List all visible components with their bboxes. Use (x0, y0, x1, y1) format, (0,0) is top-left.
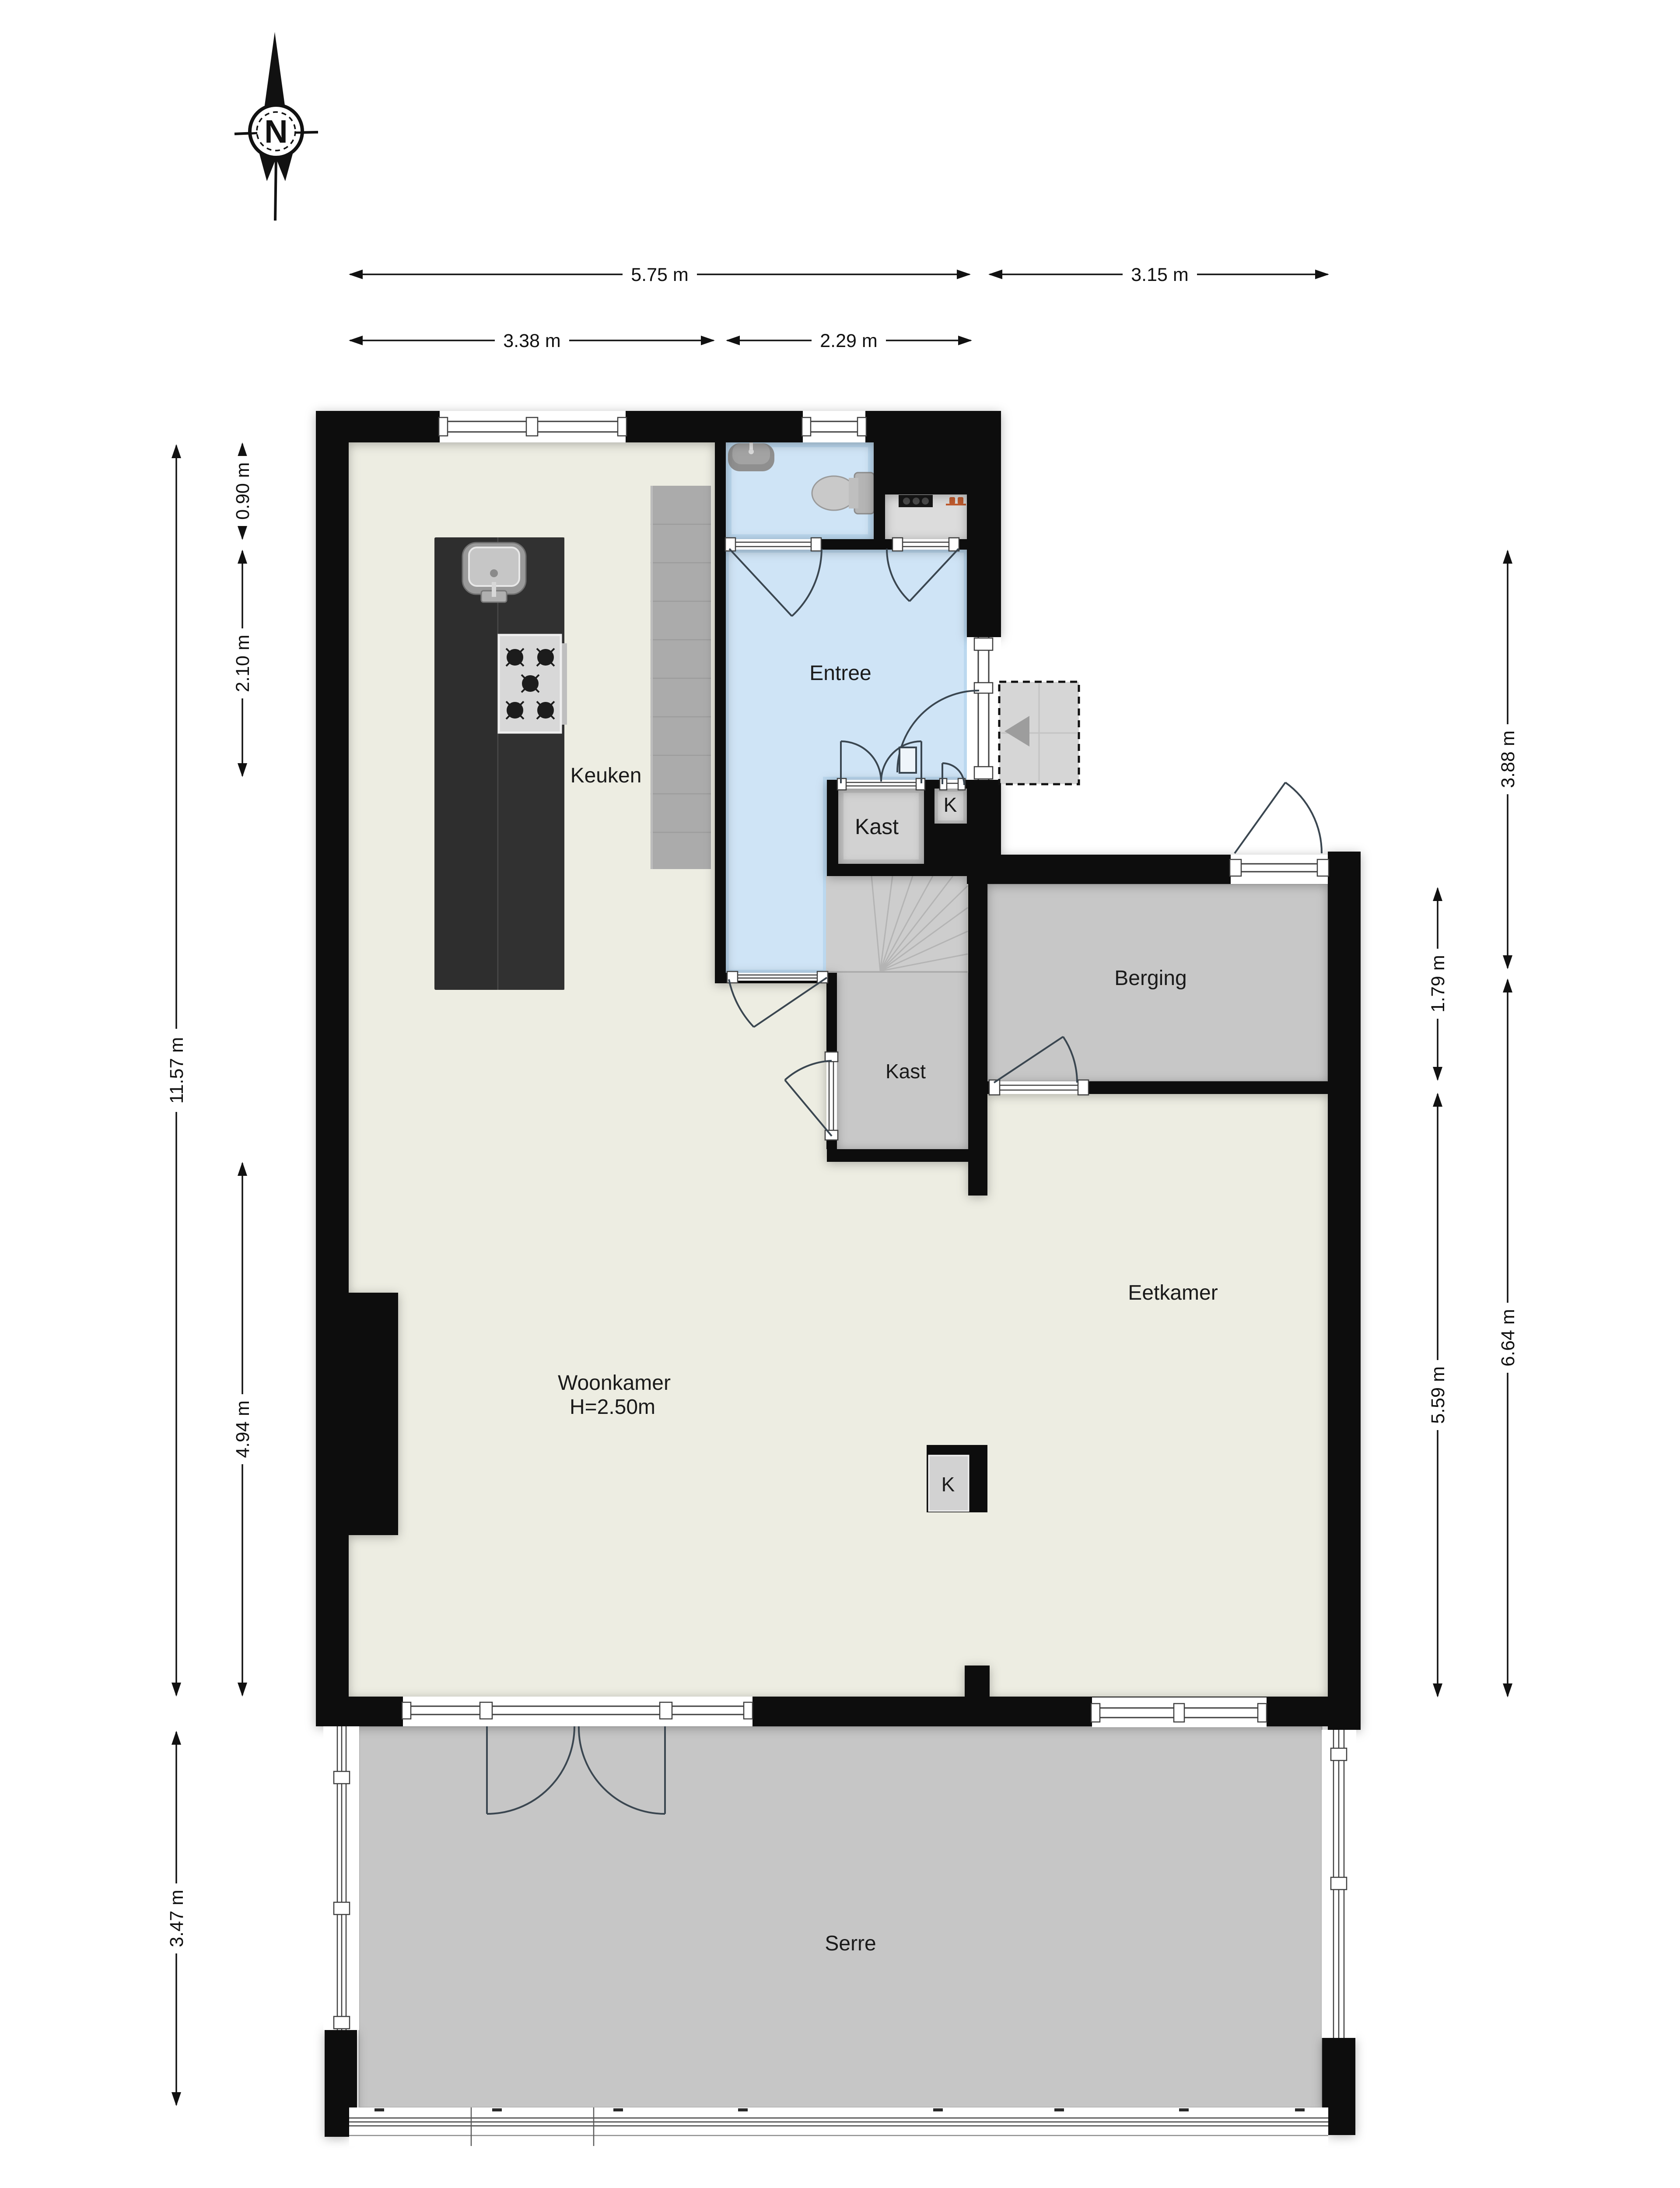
svg-text:3.38 m: 3.38 m (503, 330, 560, 351)
svg-text:5.75 m: 5.75 m (631, 264, 688, 285)
svg-text:4.94 m: 4.94 m (232, 1400, 253, 1458)
svg-text:Serre: Serre (825, 1932, 876, 1955)
svg-text:1.79 m: 1.79 m (1428, 955, 1449, 1012)
svg-text:N: N (264, 113, 287, 150)
svg-text:Entree: Entree (809, 662, 871, 685)
svg-text:Eetkamer: Eetkamer (1128, 1281, 1218, 1304)
svg-text:K: K (941, 1473, 955, 1496)
svg-text:3.88 m: 3.88 m (1498, 730, 1519, 788)
svg-text:Kast: Kast (885, 1060, 926, 1083)
svg-text:5.59 m: 5.59 m (1428, 1366, 1449, 1424)
svg-text:K: K (944, 793, 957, 816)
svg-text:Berging: Berging (1114, 967, 1186, 990)
svg-text:11.57 m: 11.57 m (166, 1037, 187, 1104)
svg-text:0.90 m: 0.90 m (232, 462, 253, 519)
svg-text:Keuken: Keuken (570, 764, 642, 787)
svg-text:H=2.50m: H=2.50m (570, 1396, 655, 1419)
svg-text:2.10 m: 2.10 m (232, 635, 253, 692)
svg-text:3.15 m: 3.15 m (1131, 264, 1188, 285)
svg-text:Woonkamer: Woonkamer (558, 1371, 671, 1395)
svg-text:3.47 m: 3.47 m (166, 1890, 187, 1947)
svg-text:6.64 m: 6.64 m (1498, 1309, 1519, 1366)
svg-text:Kast: Kast (855, 814, 899, 839)
svg-text:2.29 m: 2.29 m (820, 330, 877, 351)
